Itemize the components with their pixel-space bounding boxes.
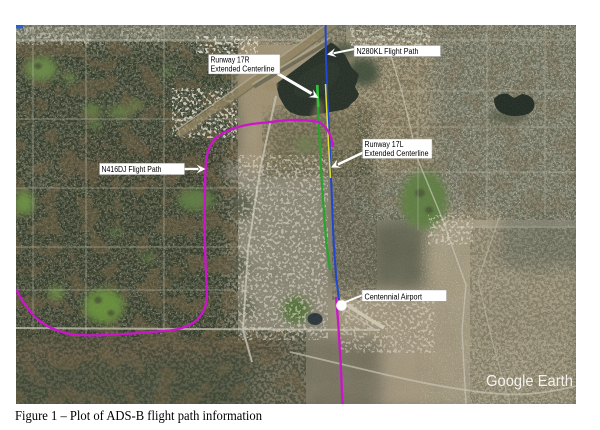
svg-text:N280KL Flight Path: N280KL Flight Path [357, 47, 419, 56]
svg-text:Google Earth: Google Earth [486, 373, 573, 390]
svg-text:N416DJ Flight Path: N416DJ Flight Path [102, 165, 162, 174]
svg-text:Runway 17R: Runway 17R [211, 56, 250, 65]
svg-text:Runway 17L: Runway 17L [365, 140, 404, 149]
svg-text:Extended Centerline: Extended Centerline [365, 149, 429, 158]
svg-text:Extended Centerline: Extended Centerline [211, 65, 275, 74]
svg-text:Figure 1 – Plot of ADS-B fligh: Figure 1 – Plot of ADS-B flight path inf… [15, 408, 262, 423]
svg-text:Centennial Airport: Centennial Airport [365, 292, 423, 301]
